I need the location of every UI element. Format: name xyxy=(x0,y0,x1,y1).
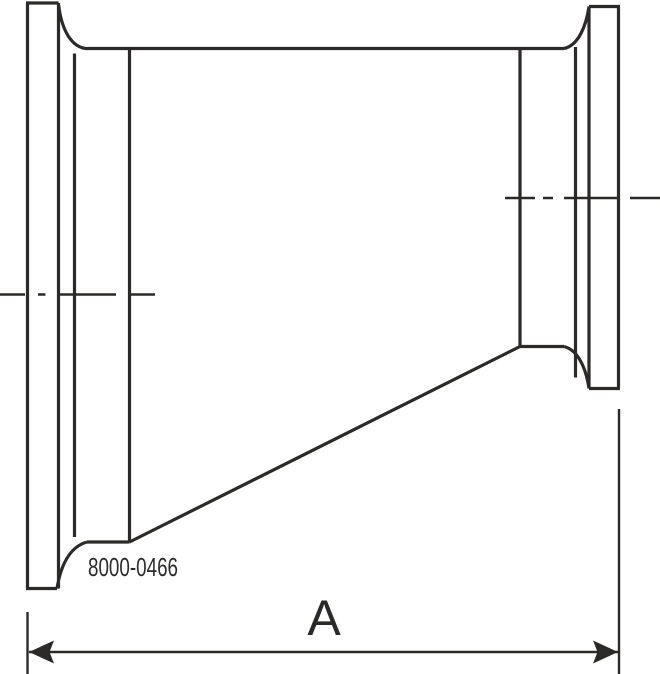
left-ferrule xyxy=(26,3,87,589)
dimension-a-label: A xyxy=(307,590,341,646)
left-ferrule-outline xyxy=(26,3,87,589)
reducer-body xyxy=(85,49,564,543)
eccentric-reducer-drawing: A 8000-0466 xyxy=(0,0,660,674)
reducer-body-outline xyxy=(85,49,564,543)
drawing-canvas: A 8000-0466 xyxy=(0,0,660,674)
part-number-label: 8000-0466 xyxy=(88,552,178,582)
